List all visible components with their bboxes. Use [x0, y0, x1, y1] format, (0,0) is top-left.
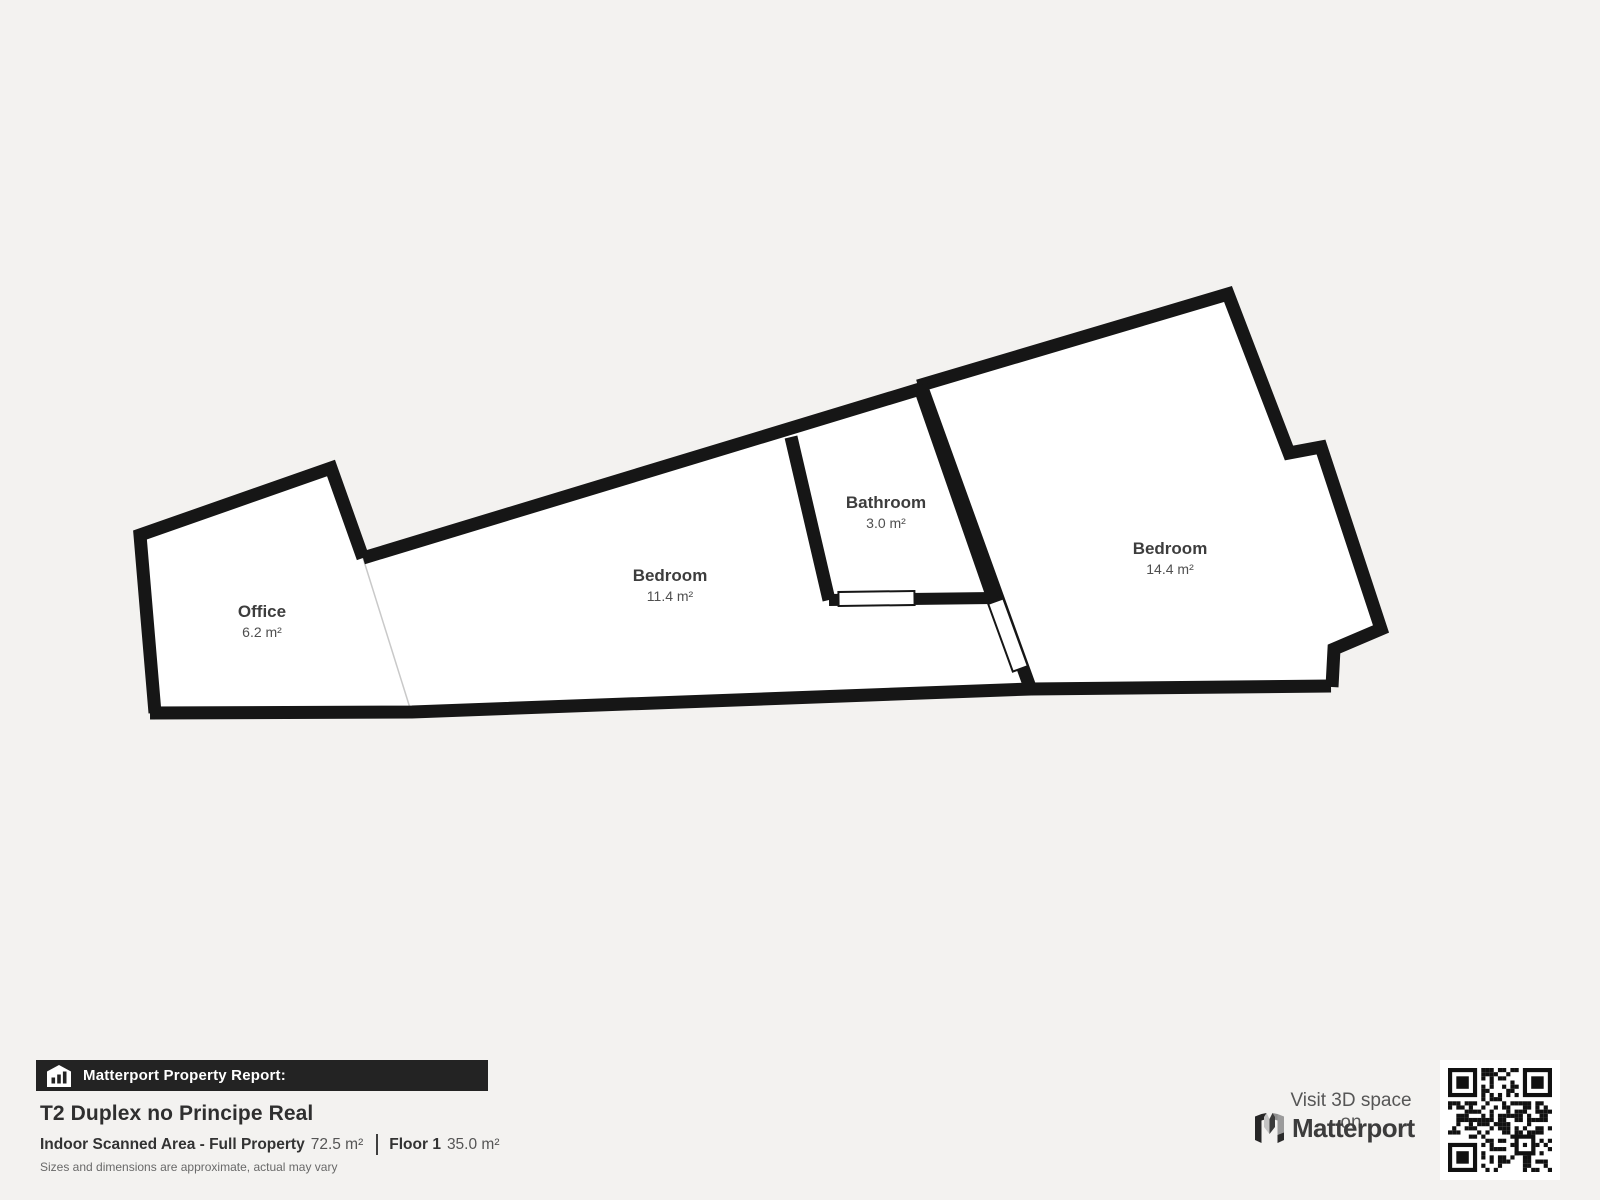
room-name: Bedroom	[1133, 539, 1208, 559]
property-title: T2 Duplex no Principe Real	[40, 1102, 313, 1126]
room-name: Bedroom	[633, 566, 708, 586]
room-label-office: Office 6.2 m²	[238, 602, 286, 642]
room-name: Office	[238, 602, 286, 622]
matterport-logo-icon	[1255, 1113, 1284, 1144]
house-chart-icon	[47, 1065, 71, 1087]
scanned-area-label: Indoor Scanned Area - Full Property	[40, 1136, 305, 1154]
qr-code	[1440, 1060, 1560, 1180]
matterport-wordmark: Matterport	[1292, 1113, 1415, 1144]
room-area: 6.2 m²	[238, 623, 286, 642]
disclaimer-text: Sizes and dimensions are approximate, ac…	[40, 1160, 337, 1174]
office-floor	[140, 468, 412, 713]
room-area: 14.4 m²	[1133, 560, 1208, 579]
scanned-area-value: 72.5 m²	[311, 1136, 364, 1154]
room-label-bedroom-2: Bedroom 14.4 m²	[1133, 539, 1208, 579]
matterport-floorplan-report: Office 6.2 m² Bedroom 11.4 m² Bathroom 3…	[0, 0, 1600, 1200]
matterport-logo: Matterport	[1255, 1112, 1415, 1144]
area-info-row: Indoor Scanned Area - Full Property 72.5…	[40, 1134, 500, 1155]
floor-value: 35.0 m²	[447, 1136, 500, 1154]
property-report-banner: Matterport Property Report:	[36, 1060, 488, 1091]
room-label-bathroom: Bathroom 3.0 m²	[846, 493, 926, 533]
room-label-bedroom-1: Bedroom 11.4 m²	[633, 566, 708, 606]
room-name: Bathroom	[846, 493, 926, 513]
banner-label: Matterport Property Report:	[83, 1067, 286, 1084]
floor-plan	[0, 0, 1600, 1200]
info-divider	[376, 1134, 378, 1155]
floor-label: Floor 1	[389, 1136, 441, 1154]
bathroom-door	[838, 591, 914, 606]
room-area: 11.4 m²	[633, 587, 708, 606]
room-area: 3.0 m²	[846, 514, 926, 533]
qr-code-pattern	[1448, 1068, 1552, 1172]
